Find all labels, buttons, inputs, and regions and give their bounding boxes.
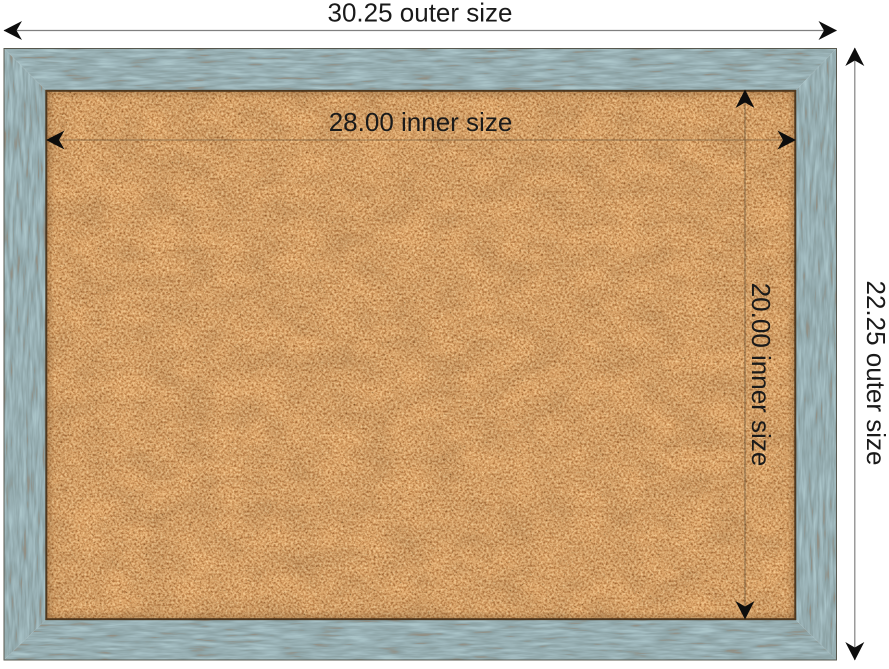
svg-text:28.00 inner size: 28.00 inner size bbox=[329, 107, 513, 137]
svg-text:30.25 outer size: 30.25 outer size bbox=[327, 0, 512, 28]
svg-text:20.00 inner size: 20.00 inner size bbox=[746, 283, 776, 467]
svg-text:22.25 outer size: 22.25 outer size bbox=[861, 280, 889, 465]
